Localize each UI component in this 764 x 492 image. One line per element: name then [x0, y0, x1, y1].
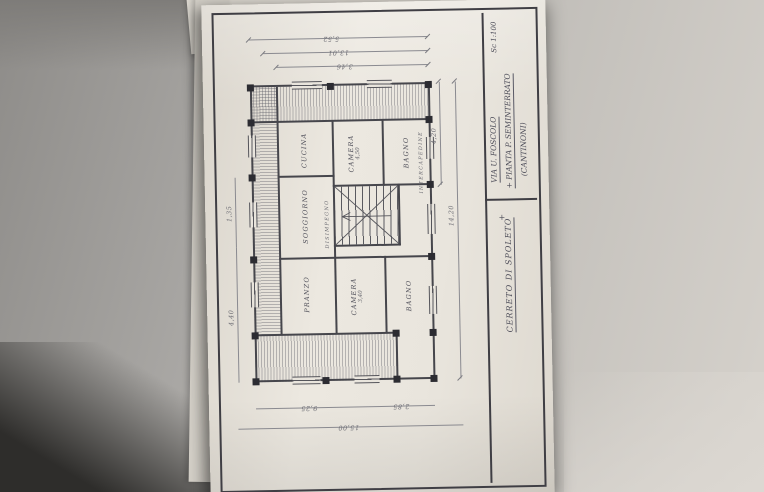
- room-label-soggiorno: SOGGIORNO: [301, 189, 310, 244]
- column-marker: [428, 253, 435, 260]
- column-marker: [252, 378, 259, 385]
- stair-cross-overlay: [216, 13, 491, 488]
- column-marker: [425, 116, 432, 123]
- column-marker: [249, 174, 256, 181]
- column-marker: [393, 330, 400, 337]
- dimension-label: 13,01: [328, 49, 349, 57]
- column-marker: [322, 377, 329, 384]
- column-marker: [247, 119, 254, 126]
- window-marker: [251, 282, 259, 307]
- dimension-label: 2,85: [393, 402, 410, 410]
- column-marker: [425, 81, 432, 88]
- background-highlight-bottom-right: [564, 372, 764, 492]
- room-label-bagno-right: BAGNO: [402, 137, 411, 169]
- title-street: VIA U. FOSCOLO: [488, 117, 500, 183]
- window-marker: [248, 135, 256, 157]
- window-marker: [249, 202, 257, 227]
- room-label-cucina: CUCINA: [300, 133, 309, 169]
- window-marker: [292, 376, 320, 385]
- photo-background: PRANZO SOGGIORNO CUCINA CAMERA3,40 BAGNO…: [0, 0, 764, 492]
- room-label-camera-right: CAMERA4,50: [347, 134, 362, 172]
- title-plan: + PIANTA P. SEMINTERRATO: [503, 73, 516, 188]
- column-marker: [430, 329, 437, 336]
- location-label: CERRETO DI SPOLETO: [503, 218, 516, 333]
- room-label-camera-left: CAMERA3,40: [350, 277, 365, 315]
- annotation-intercapedine: INTERCAPEDINE: [418, 131, 425, 194]
- title-subtitle: (CANTINONI): [519, 122, 529, 176]
- column-marker: [327, 83, 334, 90]
- dimension-label: 5,52: [323, 35, 340, 43]
- column-marker: [250, 256, 257, 263]
- column-marker: [393, 376, 400, 383]
- room-label-bagno-left: BAGNO: [405, 279, 414, 311]
- location-plus-mark: +: [497, 214, 506, 221]
- window-marker: [429, 286, 438, 314]
- dimension-label: 9,25: [301, 404, 318, 412]
- window-marker: [292, 81, 322, 90]
- room-label-pranzo: PRANZO: [303, 276, 312, 313]
- column-marker: [247, 84, 254, 91]
- dimension-label: 14,20: [447, 205, 455, 226]
- floor-plan: PRANZO SOGGIORNO CUCINA CAMERA3,40 BAGNO…: [216, 12, 543, 488]
- title-scale: Sc 1:100: [490, 22, 499, 53]
- column-marker: [430, 375, 437, 382]
- dimension-label: 4,20: [430, 128, 438, 145]
- dimension-label: 3,46: [336, 62, 353, 70]
- column-marker: [252, 332, 259, 339]
- drawing-sheet: PRANZO SOGGIORNO CUCINA CAMERA3,40 BAGNO…: [201, 0, 554, 492]
- column-marker: [427, 181, 434, 188]
- window-marker: [354, 375, 379, 383]
- window-marker: [367, 80, 392, 88]
- dimension-label: 4,40: [227, 310, 235, 327]
- dimension-label: 15,00: [338, 423, 359, 431]
- annotation-disimpegno: DISIMPEGNO: [324, 199, 331, 248]
- drawing-border-frame: PRANZO SOGGIORNO CUCINA CAMERA3,40 BAGNO…: [211, 7, 546, 492]
- title-strip-divider-vertical: [485, 198, 537, 201]
- dimension-label: 1,35: [225, 206, 233, 223]
- window-marker: [427, 204, 436, 234]
